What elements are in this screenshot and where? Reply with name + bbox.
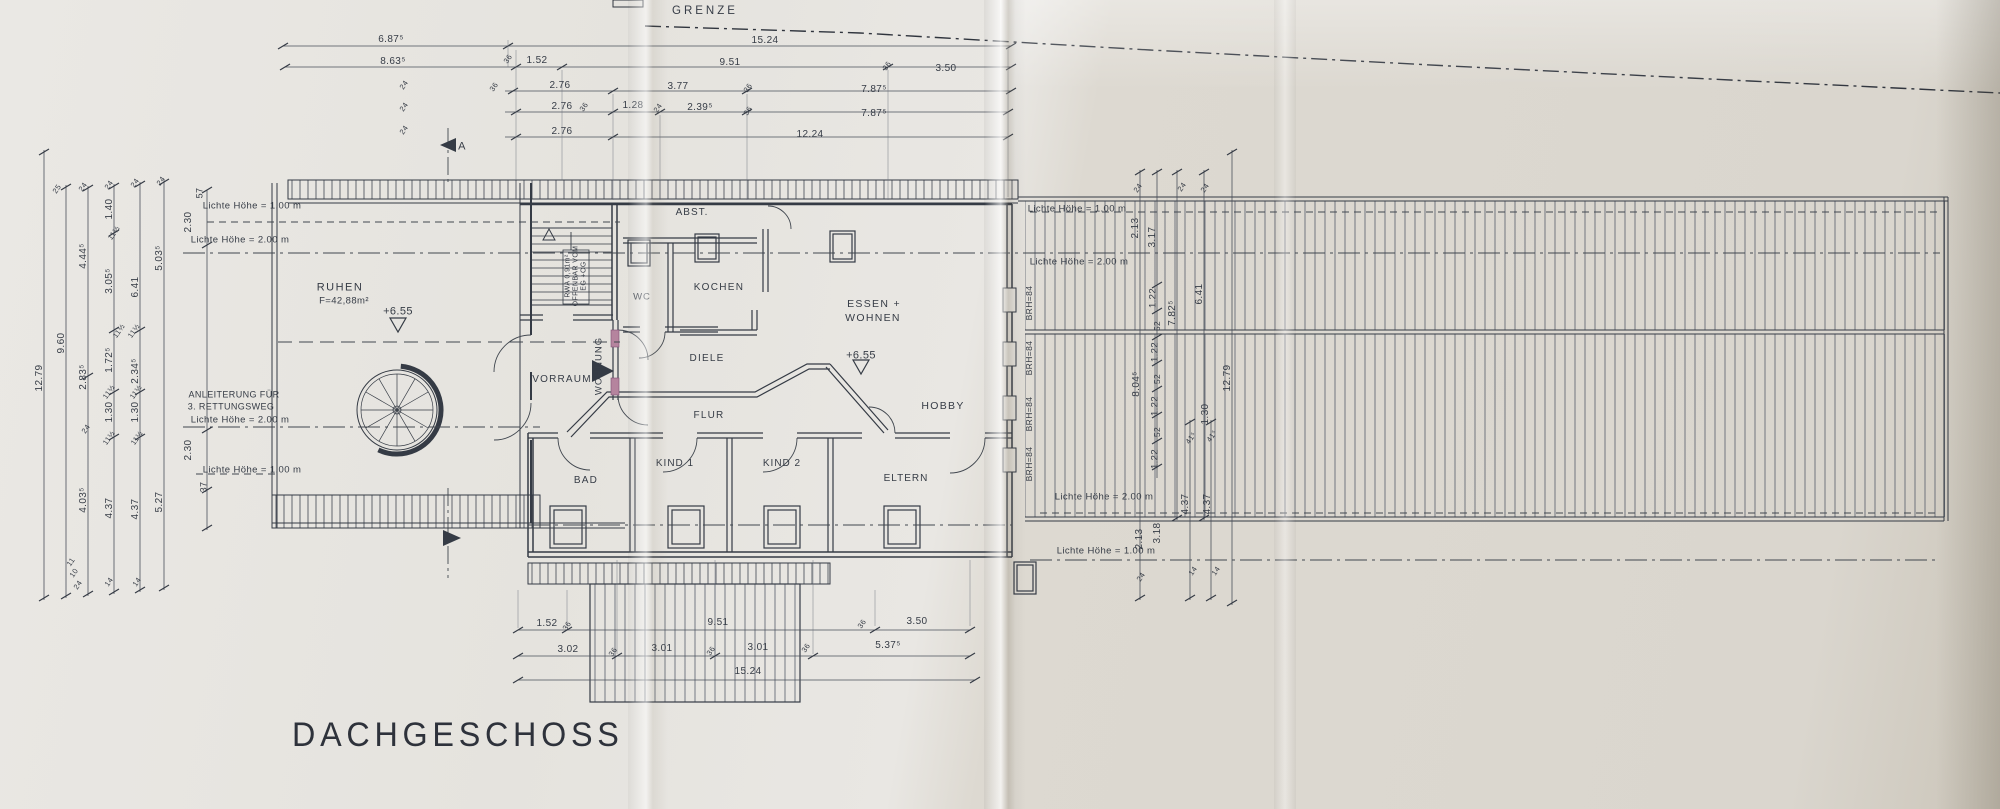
plan-linework bbox=[0, 0, 2000, 809]
boundary-label: GRENZE bbox=[672, 5, 738, 17]
balcony-hatch bbox=[590, 584, 800, 702]
boundary-line bbox=[613, 0, 2000, 93]
hatch-areas bbox=[272, 180, 1945, 702]
rwa-note-box bbox=[563, 250, 589, 304]
chimneys bbox=[628, 231, 855, 266]
drawing-title: DACHGESCHOSS bbox=[292, 716, 624, 755]
spiral-stair bbox=[357, 366, 441, 454]
roof-hatch-upper bbox=[1025, 201, 1945, 330]
floor-plan-sheet: RUHENF=42,88m²ABST.WCKOCHENESSEN +WOHNEN… bbox=[0, 0, 2000, 809]
roof-hatch-lower bbox=[1025, 334, 1945, 517]
walls bbox=[272, 183, 1036, 594]
